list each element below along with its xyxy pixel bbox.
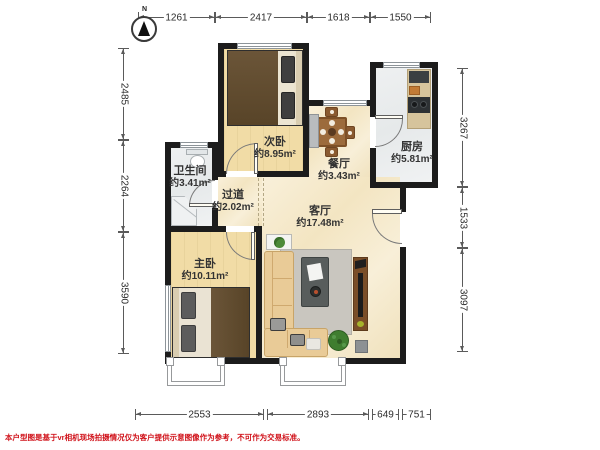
room-name: 客厅 <box>280 205 360 218</box>
dimension-segment: 649 <box>372 409 399 420</box>
dimension-segment: 3590 <box>118 232 129 354</box>
wall <box>432 62 438 188</box>
secondary-bed <box>227 50 303 126</box>
throw-pillow <box>306 338 321 350</box>
throw-pillow <box>290 334 305 346</box>
room-area: 约17.48m² <box>280 218 360 230</box>
dimension-segment: 1550 <box>370 12 431 23</box>
dimension-label: 3590 <box>118 280 129 306</box>
dimension-label: 751 <box>406 409 427 420</box>
wall <box>303 100 323 106</box>
room-label-bathroom: 卫生间 约3.41m² <box>150 165 230 190</box>
papers <box>307 263 324 281</box>
wall <box>400 247 406 364</box>
entry-door-leaf <box>372 209 402 214</box>
window <box>383 62 420 68</box>
dimension-label: 2264 <box>118 173 129 199</box>
master-bed <box>172 287 250 358</box>
bed-blanket <box>228 51 278 125</box>
dimension-label: 1618 <box>325 12 351 23</box>
room-name: 主卧 <box>165 258 245 271</box>
bed-headboard <box>173 288 179 357</box>
window-cap <box>217 357 225 366</box>
disclaimer-text: 本户型图是基于vr相机现场拍摄情况仅为客户提供示意图像作为参考，不可作为交易标准… <box>5 432 305 443</box>
bed-blanket <box>211 288 249 357</box>
room-name: 卫生间 <box>150 165 230 178</box>
dimension-label: 649 <box>375 409 396 420</box>
dimension-label: 2893 <box>305 409 331 420</box>
window-cap <box>166 357 174 366</box>
wall <box>224 358 281 364</box>
dimension-label: 3267 <box>457 114 468 140</box>
room-name: 餐厅 <box>299 158 379 171</box>
dining-table <box>317 117 347 147</box>
wall <box>256 226 262 364</box>
dimension-segment: 1618 <box>307 12 370 23</box>
tv <box>358 273 363 317</box>
dimension-segment: 3097 <box>457 248 468 352</box>
wall <box>370 62 376 117</box>
room-name: 厨房 <box>372 141 452 154</box>
window <box>165 285 171 352</box>
dimension-segment: 2264 <box>118 140 129 232</box>
window <box>323 100 367 106</box>
wall <box>420 62 438 68</box>
dimension-segment: 2553 <box>135 409 264 420</box>
wall <box>218 43 224 177</box>
bed-pillow <box>181 325 196 352</box>
wall <box>345 358 406 364</box>
console-table <box>266 234 292 250</box>
compass-north-label: N <box>142 6 147 13</box>
wall <box>367 100 376 106</box>
room-area: 约10.11m² <box>165 271 245 283</box>
room-label-hallway: 过道 约2.02m² <box>193 189 273 214</box>
kitchen-stove <box>408 97 430 113</box>
dimension-label: 2553 <box>186 409 212 420</box>
floor-plan: 次卧 约8.95m² 餐厅 约3.43m² 厨房 约5.81m² 卫生间 约3.… <box>0 0 600 450</box>
throw-pillow <box>270 318 286 331</box>
bed-headboard <box>296 51 302 125</box>
room-label-kitchen: 厨房 约5.81m² <box>372 141 452 166</box>
speaker <box>355 259 366 269</box>
bed-pillow <box>181 292 196 319</box>
room-name: 过道 <box>193 189 273 202</box>
compass-needle <box>138 21 150 36</box>
bowl <box>310 286 321 297</box>
dimension-label: 2417 <box>248 12 274 23</box>
wall <box>165 226 226 232</box>
dimension-segment: 751 <box>402 409 431 420</box>
bay-window <box>280 364 346 386</box>
dimension-label: 1261 <box>163 12 189 23</box>
dimension-label: 3097 <box>457 287 468 313</box>
room-area: 约5.81m² <box>372 154 452 166</box>
dimension-label: 2485 <box>118 81 129 107</box>
dimension-segment: 1533 <box>457 187 468 248</box>
kitchen-appliance <box>409 71 429 83</box>
door-leaf <box>375 115 403 119</box>
room-area: 约3.43m² <box>299 171 379 183</box>
dimension-segment: 2893 <box>267 409 369 420</box>
coffee-table <box>301 257 329 307</box>
room-name: 次卧 <box>235 136 315 149</box>
tv-stand <box>353 257 368 331</box>
kitchen-counter <box>407 69 431 129</box>
decor-dot <box>357 321 364 327</box>
dimension-segment: 2417 <box>215 12 307 23</box>
door-leaf <box>251 232 255 260</box>
stool <box>355 340 368 353</box>
plant <box>328 330 349 351</box>
bed-pillow <box>281 92 295 119</box>
room-label-living: 客厅 约17.48m² <box>280 205 360 230</box>
window <box>180 142 208 148</box>
dining-chair <box>325 147 338 157</box>
wall <box>370 182 438 188</box>
dimension-segment: 2485 <box>118 48 129 140</box>
kitchen-sink <box>409 86 420 95</box>
dimension-segment: 3267 <box>457 68 468 187</box>
window-cap <box>279 357 287 366</box>
room-area: 约2.02m² <box>193 202 273 214</box>
dimension-label: 1533 <box>457 204 468 230</box>
window-cap <box>338 357 346 366</box>
dimension-label: 1550 <box>387 12 413 23</box>
bay-window <box>167 364 225 386</box>
room-label-dining: 餐厅 约3.43m² <box>299 158 379 183</box>
room-label-master-bedroom: 主卧 约10.11m² <box>165 258 245 283</box>
compass-icon <box>131 16 157 42</box>
plant-icon <box>274 237 285 248</box>
window <box>237 43 292 49</box>
dining-chair <box>325 107 338 117</box>
bed-pillow <box>281 56 295 83</box>
